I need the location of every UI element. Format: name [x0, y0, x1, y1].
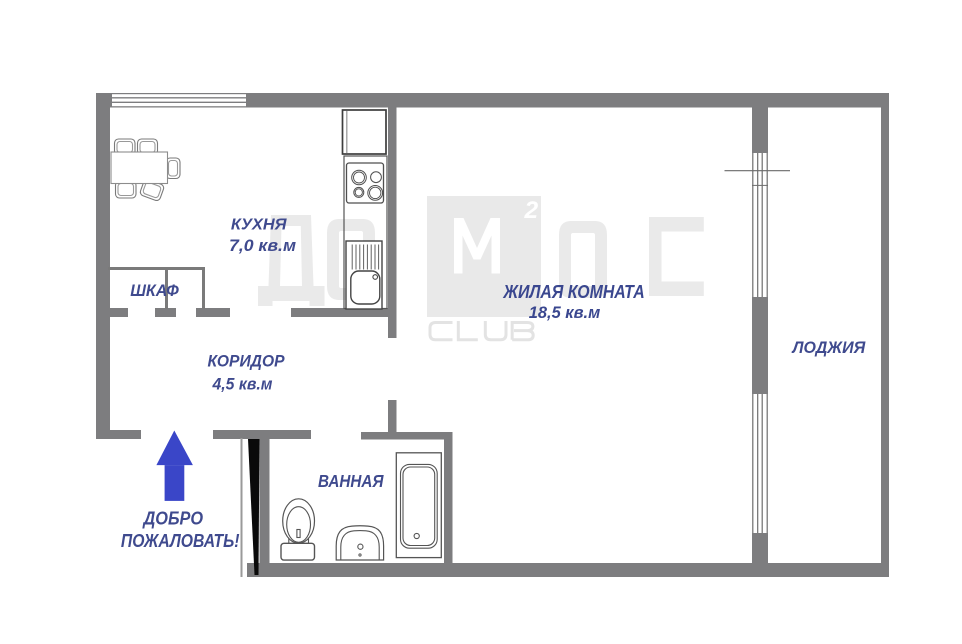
svg-text:ВАННАЯ: ВАННАЯ — [318, 471, 385, 491]
svg-text:4,5 кв.м: 4,5 кв.м — [212, 374, 273, 393]
svg-text:ДОБРО: ДОБРО — [142, 509, 203, 529]
svg-text:ЛОДЖИЯ: ЛОДЖИЯ — [792, 339, 867, 357]
svg-text:КОРИДОР: КОРИДОР — [208, 352, 286, 371]
svg-text:ШКАФ: ШКАФ — [130, 282, 179, 300]
svg-text:18,5 кв.м: 18,5 кв.м — [529, 303, 601, 322]
svg-text:ЖИЛАЯ КОМНАТА: ЖИЛАЯ КОМНАТА — [502, 282, 644, 302]
svg-text:КУХНЯ: КУХНЯ — [231, 217, 287, 234]
svg-text:7,0 кв.м: 7,0 кв.м — [229, 237, 296, 255]
svg-text:ПОЖАЛОВАТЬ!: ПОЖАЛОВАТЬ! — [121, 530, 240, 551]
svg-text:2: 2 — [524, 197, 539, 224]
